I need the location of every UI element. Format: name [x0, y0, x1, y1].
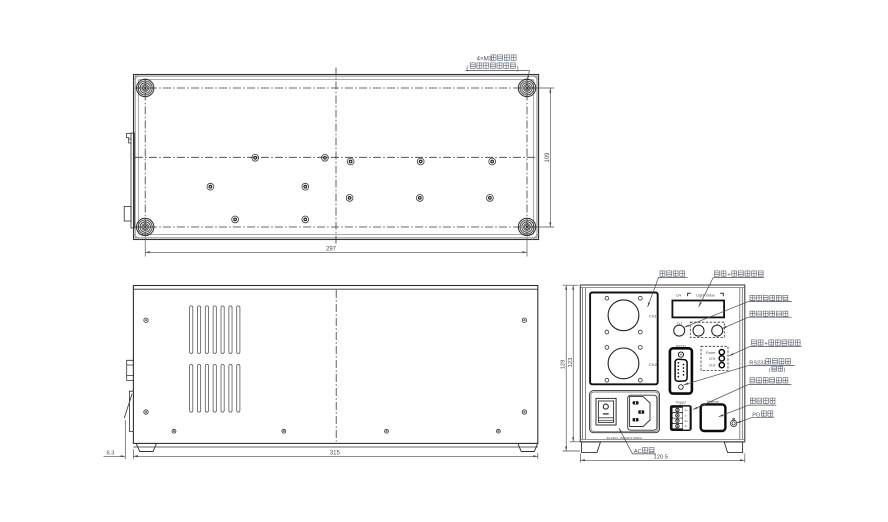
- svg-text:CH1: CH1: [649, 313, 658, 318]
- svg-text:109: 109: [545, 152, 551, 163]
- svg-text:CH: CH: [676, 293, 682, 297]
- svg-text:CH2: CH2: [709, 364, 716, 368]
- svg-text:Trigger: Trigger: [675, 400, 686, 404]
- svg-text:4×M3: 4×M3: [477, 55, 493, 62]
- svg-text:(: (: [769, 368, 771, 374]
- svg-text:129: 129: [561, 360, 567, 370]
- svg-text:Light Value: Light Value: [696, 293, 715, 297]
- svg-text:2+: 2+: [684, 419, 688, 423]
- svg-text:2-: 2-: [685, 424, 688, 428]
- svg-text:CH2: CH2: [649, 362, 658, 367]
- svg-text:120.5: 120.5: [654, 455, 669, 461]
- svg-text:6.3: 6.3: [106, 451, 114, 457]
- svg-text:1-: 1-: [685, 413, 688, 417]
- svg-text:123: 123: [568, 358, 574, 368]
- svg-text:315: 315: [330, 451, 341, 457]
- svg-text:): ): [784, 368, 786, 374]
- svg-text:1+: 1+: [684, 408, 688, 412]
- svg-text:297: 297: [326, 247, 337, 253]
- svg-text:Power: Power: [706, 351, 716, 355]
- svg-text:CH1: CH1: [709, 357, 716, 361]
